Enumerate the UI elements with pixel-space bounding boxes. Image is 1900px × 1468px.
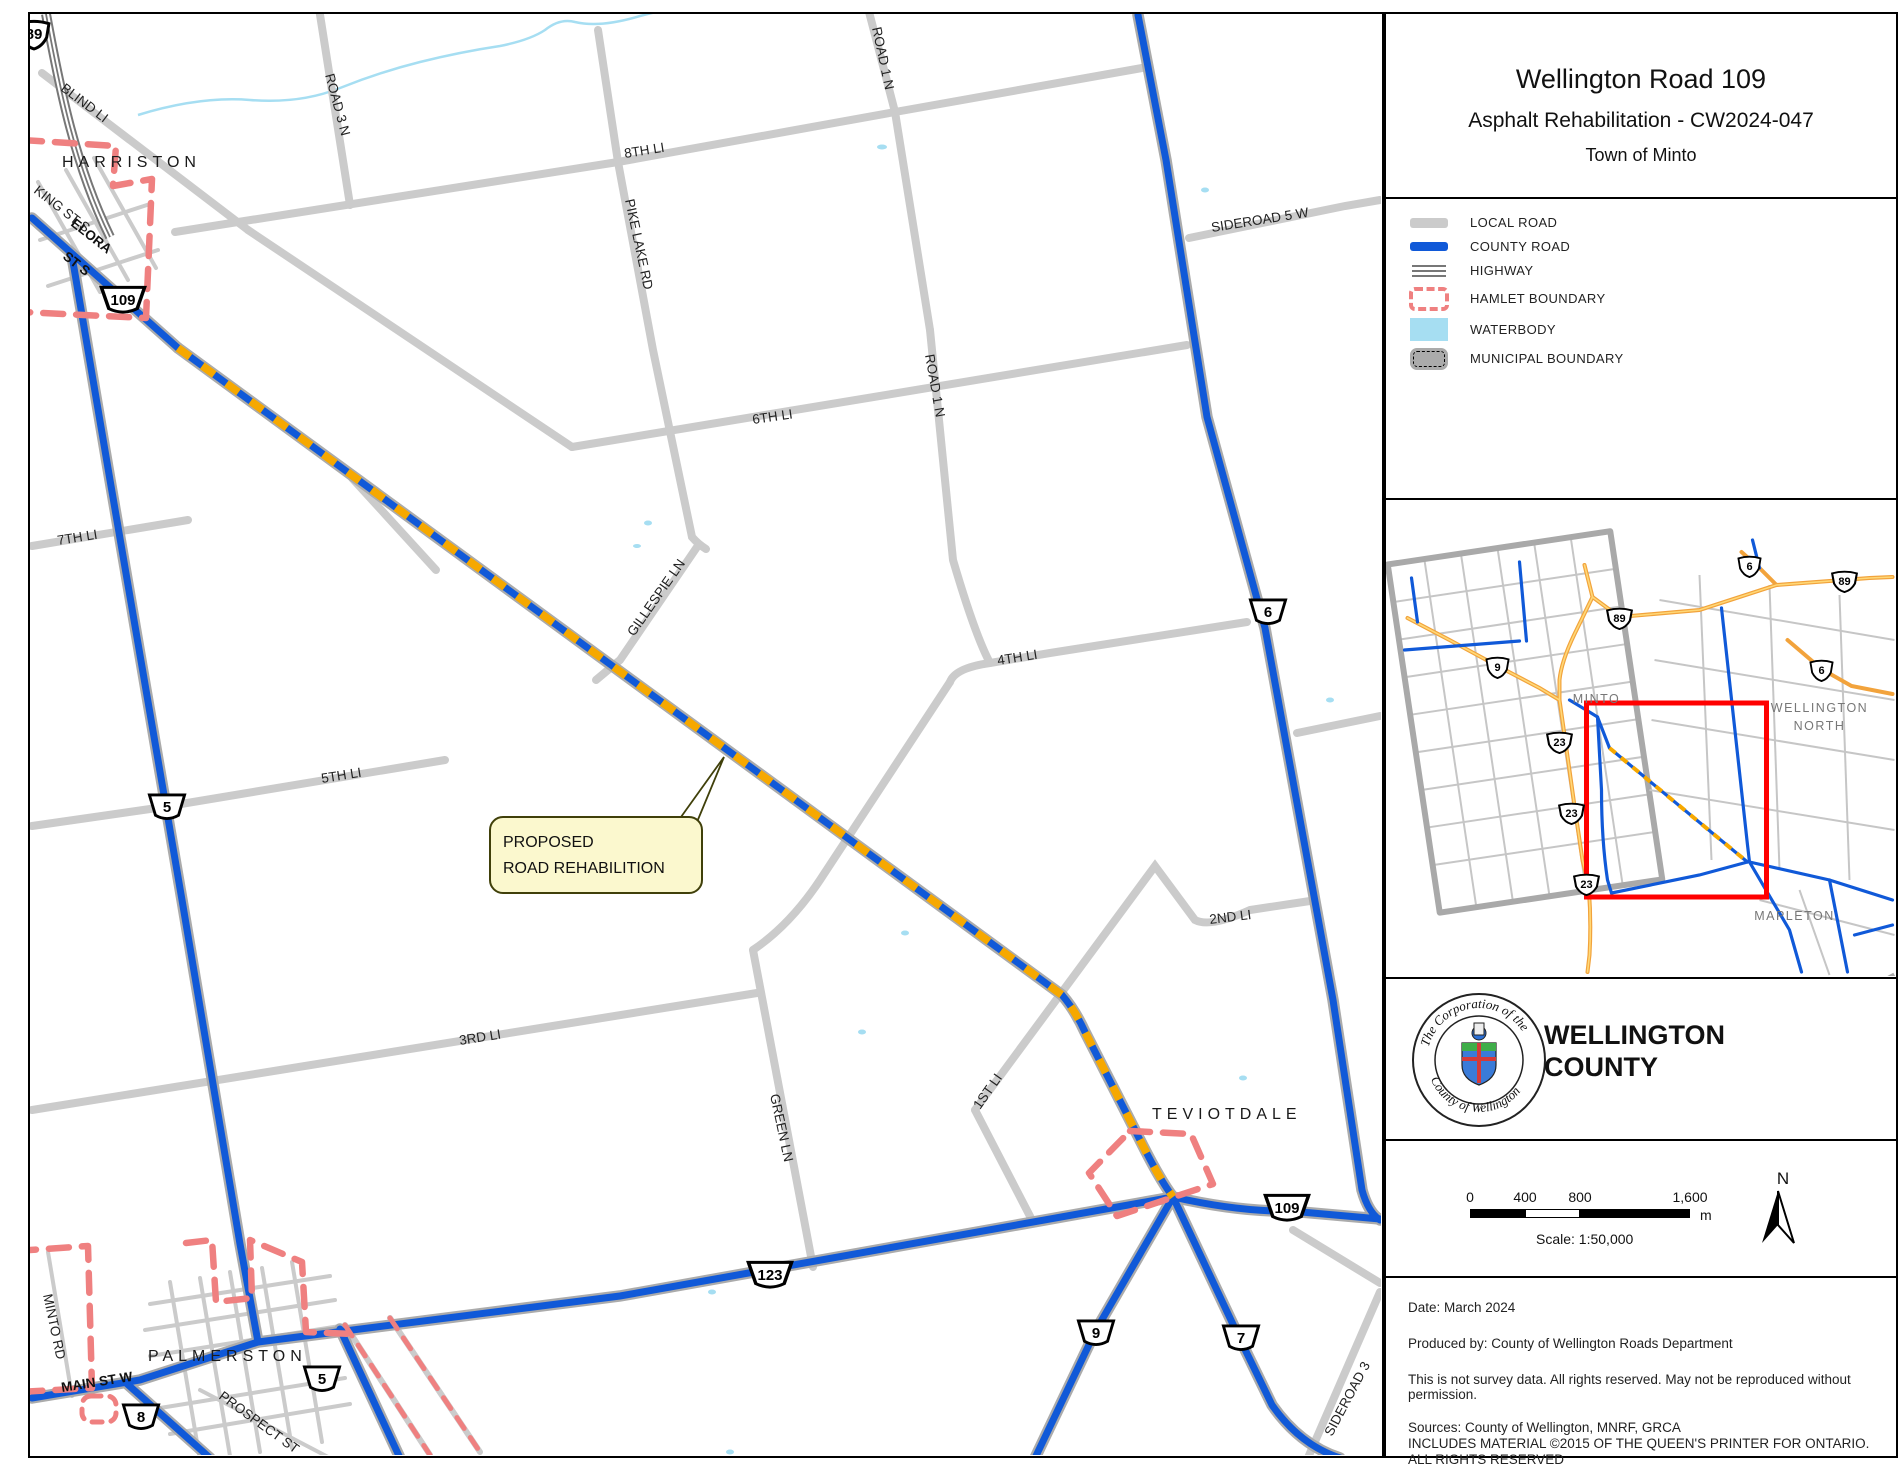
svg-text:6: 6	[1818, 665, 1824, 677]
county-road-123-shield: 123	[748, 1262, 791, 1287]
county-road-6-shield: 6	[1250, 600, 1285, 624]
svg-text:123: 123	[757, 1267, 782, 1284]
county-road-9-shield: 9	[1078, 1321, 1113, 1345]
legend-item-local-road: LOCAL ROAD	[1410, 211, 1557, 235]
produced-by: Produced by: County of Wellington Roads …	[1408, 1336, 1882, 1351]
county-road-109-shield: 109	[101, 287, 144, 312]
municipal-boundary-swatch-icon	[1410, 351, 1448, 367]
svg-text:SIDEROAD 5 W: SIDEROAD 5 W	[1210, 205, 1310, 235]
main-map: PROPOSED ROAD REHABILITION 89 109 5	[30, 14, 1381, 1455]
map-sheet: PROPOSED ROAD REHABILITION 89 109 5	[0, 0, 1900, 1468]
svg-text:2ND LI: 2ND LI	[1209, 907, 1253, 927]
highway-89-shield: 89	[30, 21, 49, 49]
scale-tick-800: 800	[1568, 1189, 1591, 1205]
svg-text:23: 23	[1565, 808, 1577, 820]
legend: LOCAL ROAD COUNTY ROAD HIGHWAY HAMLET BO…	[1384, 197, 1898, 500]
north-label: N	[1758, 1169, 1808, 1189]
svg-text:23: 23	[1580, 879, 1592, 891]
place-labels: HARRISTON TEVIOTDALE PALMERSTON	[62, 154, 1302, 1365]
map-title: Wellington Road 109	[1386, 64, 1896, 95]
overview-inset-panel: 6 89 89 9 6 23 23 23 MINTO WELLINGTON NO…	[1384, 498, 1898, 979]
legend-item-highway: HIGHWAY	[1410, 259, 1533, 283]
svg-text:89: 89	[1613, 613, 1625, 625]
north-arrow: N	[1758, 1169, 1808, 1247]
svg-text:109: 109	[110, 292, 135, 309]
svg-text:8: 8	[137, 1409, 145, 1426]
legend-item-county-road: COUNTY ROAD	[1410, 235, 1570, 259]
svg-text:89: 89	[30, 26, 42, 43]
scale-panel: 0 400 800 1,600 m Scale: 1:50,000 N	[1384, 1139, 1898, 1278]
inset-label-wellington-north-1: WELLINGTON	[1771, 701, 1868, 715]
callout-line1: PROPOSED	[503, 834, 594, 851]
overview-inset-map: 6 89 89 9 6 23 23 23 MINTO WELLINGTON NO…	[1386, 500, 1895, 976]
title-block: Wellington Road 109 Asphalt Rehabilitati…	[1384, 12, 1898, 199]
callout-line2: ROAD REHABILITION	[503, 860, 665, 877]
highway-swatch-icon	[1410, 263, 1448, 278]
road-labels: BLIND LI ROAD 3 N 8TH LI PIKE LAKE RD RO…	[31, 26, 1373, 1455]
scalebar-segment	[1470, 1209, 1525, 1218]
place-harriston: HARRISTON	[62, 154, 201, 171]
map-date: Date: March 2024	[1408, 1300, 1882, 1315]
svg-text:4TH LI: 4TH LI	[996, 647, 1038, 668]
scale-unit: m	[1700, 1207, 1712, 1223]
footer-notes: Date: March 2024 Produced by: County of …	[1384, 1276, 1898, 1458]
sources-line1: Sources: County of Wellington, MNRF, GRC…	[1408, 1420, 1882, 1435]
inset-label-mapleton: MAPLETON	[1754, 909, 1835, 923]
svg-text:7: 7	[1237, 1330, 1245, 1347]
svg-text:9: 9	[1092, 1325, 1100, 1342]
legend-item-hamlet-boundary: HAMLET BOUNDARY	[1410, 287, 1606, 311]
place-palmerston: PALMERSTON	[148, 1348, 307, 1365]
legend-item-waterbody: WATERBODY	[1410, 318, 1556, 342]
county-road-swatch-icon	[1410, 242, 1448, 251]
svg-text:GILLESPIE LN: GILLESPIE LN	[624, 556, 688, 638]
county-road-109-shield-east: 109	[1265, 1195, 1308, 1220]
svg-text:PIKE LAKE RD: PIKE LAKE RD	[622, 198, 656, 292]
disclaimer: This is not survey data. All rights rese…	[1408, 1372, 1882, 1402]
svg-text:5TH LI: 5TH LI	[320, 765, 362, 786]
logo-panel: The Corporation of the County of Welling…	[1384, 977, 1898, 1141]
scalebar-segment	[1525, 1209, 1580, 1218]
svg-text:5: 5	[163, 799, 171, 816]
hamlet-streets	[38, 158, 480, 1455]
svg-text:ROAD 1 N: ROAD 1 N	[869, 26, 897, 91]
svg-text:23: 23	[1553, 737, 1565, 749]
north-arrow-icon	[1758, 1189, 1798, 1247]
svg-text:6: 6	[1746, 561, 1752, 573]
hamlet-boundary-swatch-icon	[1410, 287, 1448, 311]
svg-text:9: 9	[1494, 662, 1500, 674]
main-map-panel: PROPOSED ROAD REHABILITION 89 109 5	[28, 12, 1384, 1458]
svg-text:1ST LI: 1ST LI	[970, 1071, 1005, 1112]
svg-text:MINTO RD: MINTO RD	[40, 1293, 69, 1361]
scale-tick-0: 0	[1466, 1189, 1474, 1205]
waterbody-swatch-icon	[1410, 318, 1448, 341]
place-teviotdale: TEVIOTDALE	[1152, 1106, 1302, 1123]
svg-text:3RD LI: 3RD LI	[458, 1027, 502, 1048]
svg-text:7TH LI: 7TH LI	[56, 527, 98, 548]
svg-text:89: 89	[1838, 576, 1850, 588]
svg-text:GREEN LN: GREEN LN	[767, 1093, 796, 1164]
scale-ratio-text: Scale: 1:50,000	[1536, 1231, 1633, 1247]
inset-label-wellington-north-2: NORTH	[1794, 719, 1846, 733]
svg-text:109: 109	[1274, 1200, 1299, 1217]
scale-tick-1600: 1,600	[1672, 1189, 1707, 1205]
map-municipality: Town of Minto	[1386, 145, 1896, 166]
proposed-rehab-callout: PROPOSED ROAD REHABILITION	[490, 757, 724, 893]
scale-tick-400: 400	[1513, 1189, 1536, 1205]
county-road-5-shield: 5	[149, 795, 184, 819]
legend-item-municipal-boundary: MUNICIPAL BOUNDARY	[1410, 347, 1624, 371]
svg-text:5: 5	[318, 1371, 326, 1388]
county-road-5-shield-palmerston: 5	[304, 1367, 339, 1391]
county-road-8-shield: 8	[123, 1405, 158, 1429]
sources-line2: INCLUDES MATERIAL ©2015 OF THE QUEEN'S P…	[1408, 1436, 1882, 1468]
wellington-county-seal-icon: The Corporation of the County of Welling…	[1404, 985, 1554, 1135]
inset-label-minto: MINTO	[1573, 692, 1621, 706]
county-road-7-shield: 7	[1223, 1326, 1258, 1350]
svg-text:6: 6	[1264, 604, 1272, 621]
county-wordmark: WELLINGTON COUNTY	[1544, 1019, 1725, 1084]
map-subtitle: Asphalt Rehabilitation - CW2024-047	[1386, 109, 1896, 133]
inset-project-segment	[1610, 748, 1748, 862]
svg-text:ROAD 3 N: ROAD 3 N	[322, 72, 353, 137]
scalebar-segment	[1580, 1209, 1690, 1218]
svg-text:6TH LI: 6TH LI	[751, 406, 793, 426]
local-road-swatch-icon	[1410, 218, 1448, 228]
